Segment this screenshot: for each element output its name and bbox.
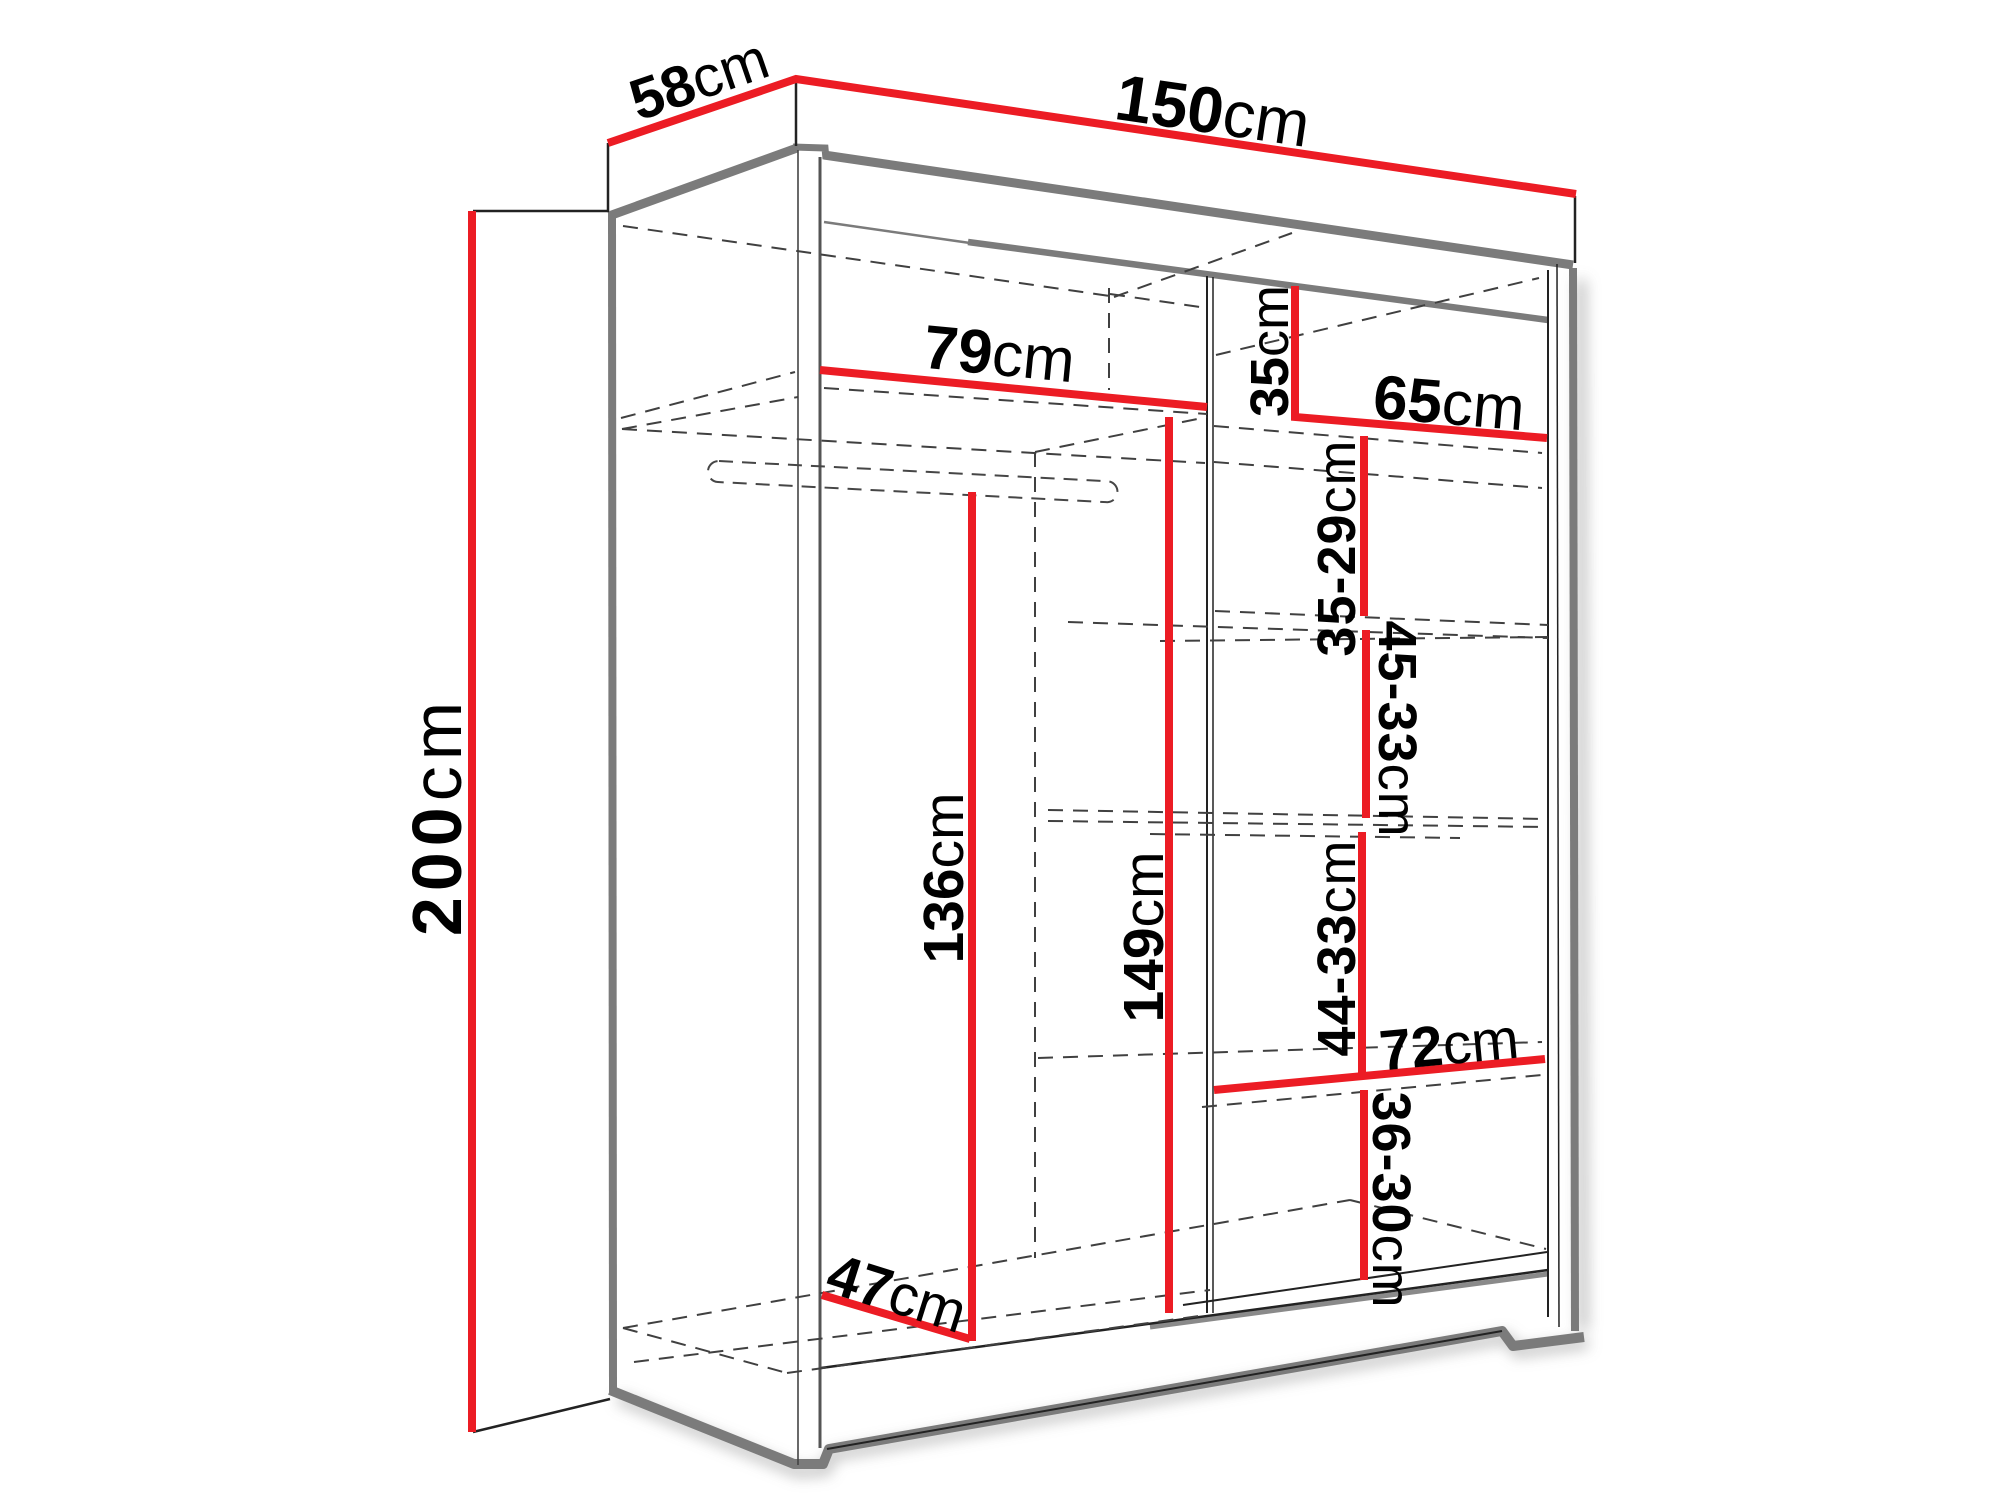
svg-text:45-33cm: 45-33cm <box>1367 620 1427 837</box>
svg-text:35-29cm: 35-29cm <box>1307 439 1367 656</box>
svg-text:65cm: 65cm <box>1371 363 1528 444</box>
svg-text:44-33cm: 44-33cm <box>1307 839 1367 1056</box>
svg-text:136cm: 136cm <box>912 792 976 963</box>
svg-text:200cm: 200cm <box>398 696 476 936</box>
svg-text:36-30cm: 36-30cm <box>1361 1091 1421 1308</box>
svg-text:149cm: 149cm <box>1112 851 1176 1022</box>
svg-text:79cm: 79cm <box>920 313 1078 396</box>
svg-text:72cm: 72cm <box>1377 1007 1522 1084</box>
svg-text:35cm: 35cm <box>1240 285 1300 417</box>
